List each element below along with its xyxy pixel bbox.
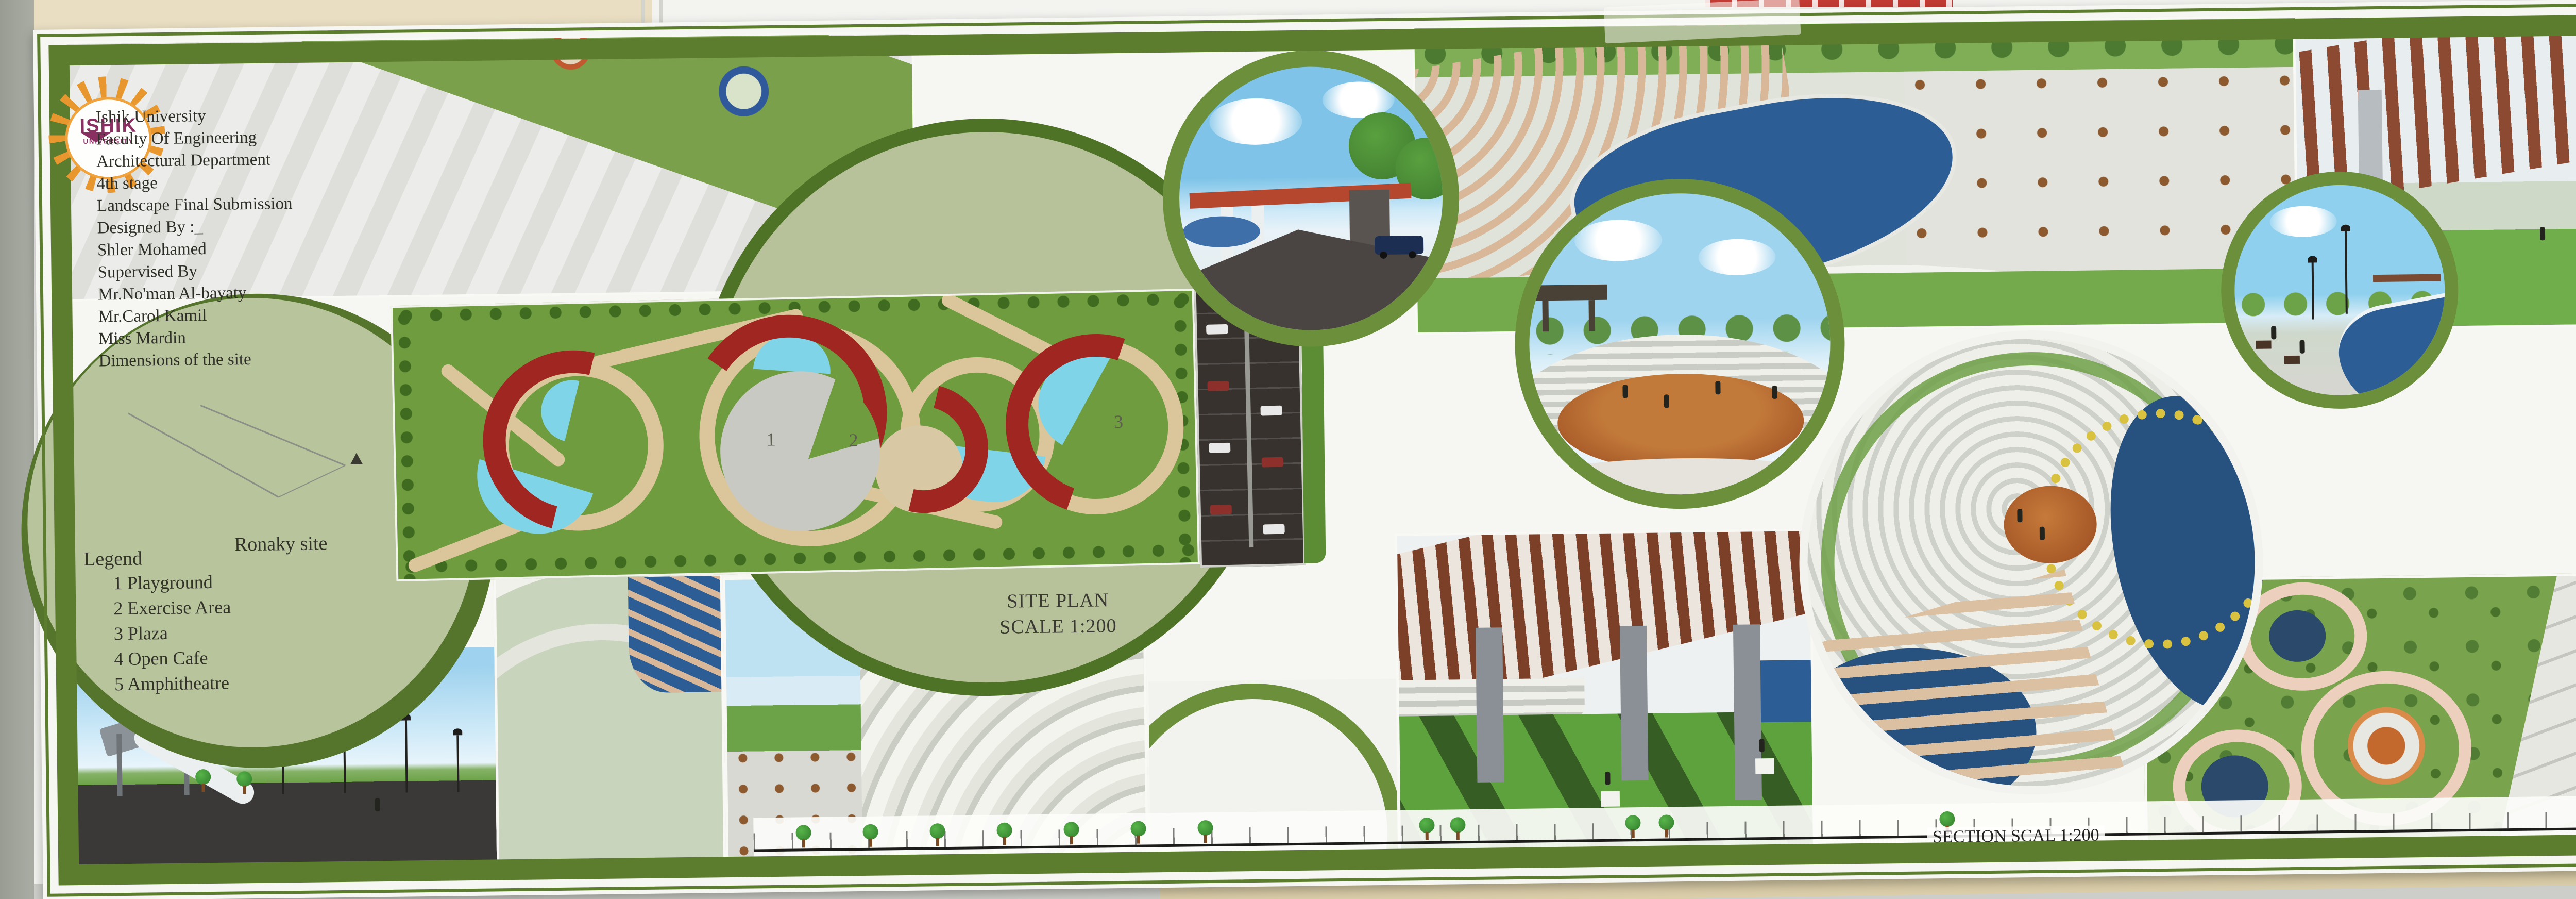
person: [1772, 386, 1777, 399]
person: [2017, 509, 2022, 522]
legend-items: 1 Playground 2 Exercise Area 3 Plaza 4 O…: [113, 570, 232, 697]
lamp-post: [2345, 231, 2348, 314]
section-tree: [928, 823, 946, 847]
section-tree: [1449, 817, 1467, 841]
pond-with-pergola: [628, 576, 725, 693]
cafe-table: [2256, 340, 2271, 348]
render-entrance-gate-circle: [1161, 48, 1461, 348]
person: [1605, 772, 1610, 785]
section-tree: [794, 825, 812, 848]
section-tree: [1196, 820, 1214, 844]
car: [1260, 406, 1282, 416]
info-line: Shler Mohamed: [97, 237, 293, 262]
lamp-post: [2312, 262, 2314, 319]
master-site-plan: 1 2 3: [391, 289, 1200, 581]
lamp-post: [405, 720, 408, 792]
info-line: Designed By :_: [97, 215, 293, 240]
person: [2540, 227, 2545, 240]
info-line: Architectural Department: [96, 148, 292, 173]
site-plan-title: SITE PLAN: [999, 587, 1116, 614]
amphitheatre-seating: [975, 304, 1200, 545]
area-marker: 3: [1114, 411, 1124, 432]
pool: [1182, 216, 1260, 248]
legend-item: 4 Open Cafe: [114, 645, 231, 672]
paved-plaza: [1513, 456, 1847, 511]
person: [1664, 394, 1669, 408]
person: [1622, 385, 1628, 398]
cloud: [1209, 98, 1302, 145]
cloud: [2269, 206, 2337, 238]
section-tree: [1624, 815, 1642, 839]
person: [1759, 739, 1765, 752]
legend-item: 3 Plaza: [114, 620, 231, 647]
legend-item: 2 Exercise Area: [113, 595, 231, 622]
info-line: Landscape Final Submission: [97, 193, 293, 218]
section-tree: [1062, 822, 1080, 845]
render-poolside-cafe-circle: [2220, 170, 2460, 410]
seat-cube: [1601, 791, 1620, 807]
site-dimensions-sketch: [123, 403, 367, 520]
tree-border: [391, 307, 424, 579]
section-tree: [1418, 818, 1436, 841]
person: [2040, 526, 2045, 540]
area-marker: 1: [766, 428, 776, 450]
ronaky-site-label: Ronaky site: [234, 532, 328, 556]
info-line: 4th stage: [96, 171, 292, 195]
car: [1375, 236, 1423, 255]
info-line: Miss Mardin: [98, 326, 294, 351]
render-stage-amphitheatre-circle: [1513, 177, 1847, 511]
section-tree: [1657, 814, 1675, 838]
info-line: Mr.Carol Kamil: [98, 304, 294, 328]
info-line: Faculty Of Engineering: [96, 126, 292, 151]
presentation-poster: SITE PLAN SCALE 1:200 Ronaky site Legend…: [33, 0, 2576, 899]
column: [1476, 627, 1504, 783]
site-plan-scale: SCALE 1:200: [999, 613, 1117, 640]
car: [1263, 524, 1284, 535]
car: [1210, 505, 1232, 515]
pergola: [2373, 274, 2441, 282]
section-tree: [1129, 821, 1147, 844]
section-tree: [861, 824, 879, 848]
person: [1715, 381, 1720, 394]
section-tree: [995, 823, 1013, 846]
info-line: Dimensions of the site: [98, 348, 294, 373]
north-arrow: [350, 453, 363, 464]
tree-sprite: [194, 769, 212, 793]
person: [375, 798, 380, 811]
info-line: Ishik University: [96, 104, 292, 129]
cloud: [1698, 239, 1776, 276]
info-line: Mr.No'man Al-bayaty: [98, 281, 294, 306]
car: [1207, 381, 1229, 391]
cloud: [1574, 220, 1663, 262]
car: [1209, 443, 1230, 453]
pergola: [1535, 285, 1607, 301]
legend-item: 1 Playground: [113, 570, 230, 596]
info-line: Supervised By: [97, 259, 293, 284]
site-plan-caption: SITE PLAN SCALE 1:200: [999, 587, 1117, 640]
car: [1262, 457, 1283, 468]
left-wall-edge: [0, 0, 34, 899]
section-label: SECTION SCAL 1:200: [1927, 825, 2105, 847]
photo-of-presentation-board: SITE PLAN SCALE 1:200 Ronaky site Legend…: [0, 0, 2576, 899]
area-marker: 2: [849, 429, 858, 451]
column: [1620, 626, 1649, 781]
legend-item: 5 Amphitheatre: [114, 671, 232, 697]
legend-title: Legend: [83, 547, 142, 571]
project-info-block: Ishik University Faculty Of Engineering …: [96, 104, 295, 372]
lamp-post: [456, 735, 459, 792]
seat-cube: [1755, 758, 1774, 774]
cafe-table: [2284, 356, 2300, 364]
person: [2271, 326, 2276, 339]
tree-sprite: [235, 771, 253, 795]
render-curved-paths-aerial: [493, 553, 726, 871]
post: [116, 734, 122, 796]
person: [2299, 340, 2304, 354]
